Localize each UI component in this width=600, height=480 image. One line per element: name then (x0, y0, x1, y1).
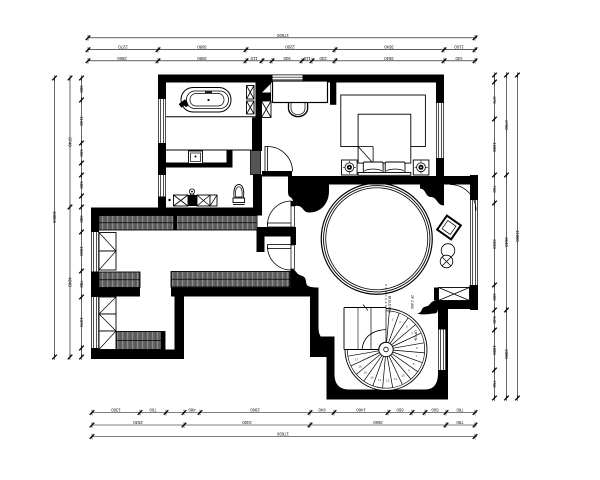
svg-text:BUILDING: BUILDING (388, 296, 392, 313)
svg-text:560: 560 (431, 408, 439, 413)
svg-text:4240: 4240 (68, 277, 73, 287)
svg-text:600: 600 (79, 85, 84, 93)
svg-text:17: 17 (355, 357, 359, 361)
svg-text:680: 680 (79, 215, 84, 223)
svg-text:3080: 3080 (197, 45, 207, 50)
svg-text:760: 760 (492, 380, 497, 388)
svg-text:790: 790 (456, 420, 464, 425)
svg-text:2220: 2220 (492, 239, 497, 249)
svg-text:540: 540 (492, 316, 497, 324)
svg-text:17600: 17600 (276, 33, 289, 38)
svg-text:650: 650 (396, 408, 404, 413)
svg-text:2270: 2270 (118, 45, 128, 50)
svg-text:700: 700 (149, 408, 157, 413)
svg-text:930: 930 (283, 56, 291, 61)
svg-text:15: 15 (364, 371, 368, 375)
svg-text:3540: 3540 (384, 56, 394, 61)
svg-text:3660: 3660 (373, 420, 383, 425)
svg-text:640: 640 (318, 408, 326, 413)
svg-text:580: 580 (79, 181, 84, 189)
svg-text:550: 550 (79, 149, 84, 157)
svg-text:1060: 1060 (79, 246, 84, 256)
svg-text:2700: 2700 (504, 120, 509, 130)
svg-text:440: 440 (455, 56, 463, 61)
svg-text:690: 690 (492, 293, 497, 301)
svg-text:2380: 2380 (504, 349, 509, 359)
svg-text:11: 11 (394, 377, 397, 381)
svg-text:10055: 10055 (52, 211, 57, 224)
svg-text:1080: 1080 (492, 345, 497, 355)
svg-text:1500: 1500 (492, 142, 497, 152)
svg-text:2F 2.860: 2F 2.860 (410, 295, 414, 309)
svg-text:700: 700 (79, 280, 84, 288)
svg-text:1360: 1360 (111, 408, 121, 413)
svg-text:110: 110 (303, 56, 310, 61)
svg-text:1160: 1160 (79, 116, 84, 126)
svg-text:760: 760 (492, 185, 497, 193)
svg-text:480: 480 (188, 408, 196, 413)
svg-text:3640: 3640 (504, 237, 509, 247)
svg-text:2860: 2860 (117, 56, 127, 61)
svg-text:10: 10 (401, 374, 405, 378)
svg-text:2290: 2290 (285, 45, 295, 50)
svg-text:11800: 11800 (515, 230, 520, 242)
svg-text:780: 780 (456, 408, 464, 413)
svg-text:17600: 17600 (276, 432, 289, 437)
svg-text:16: 16 (358, 365, 362, 369)
svg-text:1160: 1160 (454, 45, 464, 50)
svg-text:14: 14 (370, 375, 374, 379)
svg-text:UP 16: UP 16 (414, 330, 418, 340)
svg-text:230: 230 (319, 56, 327, 61)
svg-text:2530: 2530 (133, 420, 143, 425)
svg-text:1370: 1370 (79, 317, 84, 327)
svg-text:13: 13 (378, 378, 382, 382)
svg-text:2960: 2960 (250, 408, 260, 413)
svg-text:12: 12 (386, 379, 390, 383)
svg-text:3740: 3740 (68, 137, 73, 147)
svg-text:370: 370 (492, 96, 497, 104)
svg-text:110: 110 (250, 56, 257, 61)
svg-text:3080: 3080 (197, 56, 207, 61)
svg-text:1460: 1460 (356, 408, 366, 413)
svg-text:3400: 3400 (242, 420, 252, 425)
svg-text:3540: 3540 (384, 45, 394, 50)
